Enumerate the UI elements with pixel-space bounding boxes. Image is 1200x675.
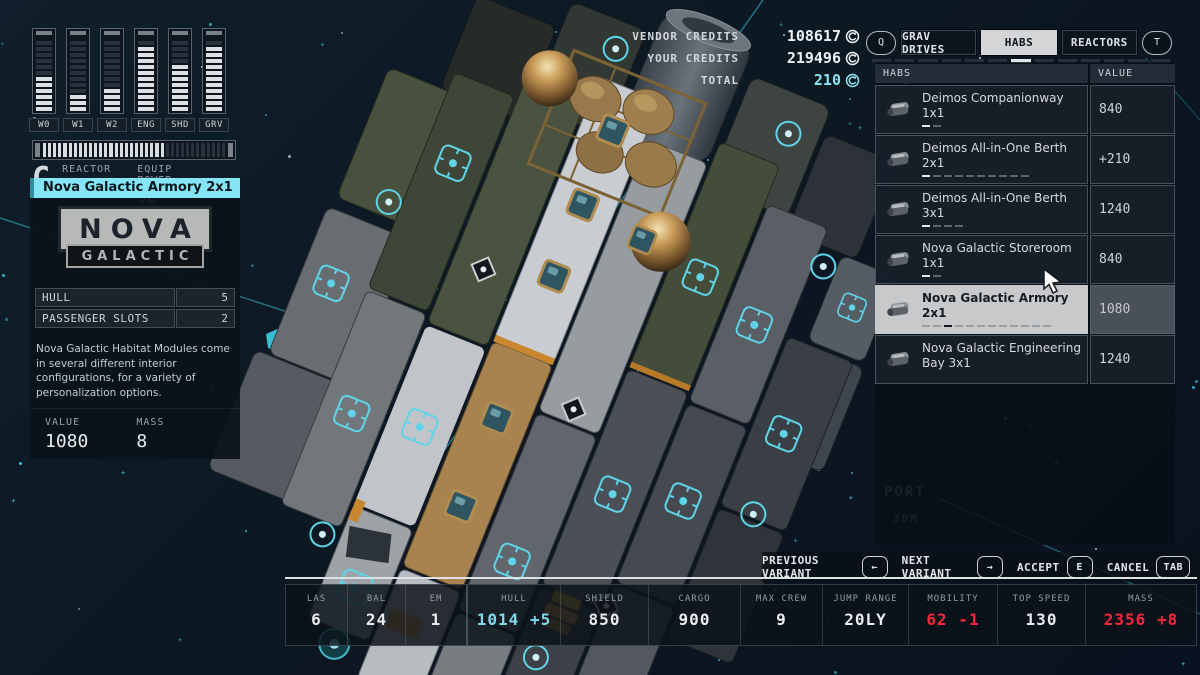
ship-stat-label: HULL bbox=[501, 594, 527, 604]
hab-module-icon bbox=[876, 251, 922, 268]
power-segment bbox=[104, 107, 120, 111]
power-segment bbox=[104, 41, 120, 45]
reactor-segment bbox=[150, 143, 153, 157]
ship-stat-value: 900 bbox=[679, 610, 711, 629]
credit-label: YOUR CREDITS bbox=[648, 52, 739, 65]
reactor-segment bbox=[99, 143, 102, 157]
ship-builder-screen: +++++++++++++++++++++++++++++++++ we bbox=[0, 0, 1200, 675]
variant-dash bbox=[955, 175, 963, 177]
credit-row: VENDOR CREDITS 108617 bbox=[598, 28, 860, 44]
ship-stat-cell: SHIELD 850 bbox=[561, 585, 649, 645]
variant-indicator bbox=[922, 225, 963, 227]
power-bar-label: W1 bbox=[63, 118, 93, 132]
power-bar-label: SHD bbox=[165, 118, 195, 132]
power-bar-cap bbox=[206, 31, 222, 35]
stat-value: 2 bbox=[176, 309, 235, 328]
ship-stat-cell: BAL 24 bbox=[348, 585, 406, 645]
reactor-segment bbox=[120, 143, 123, 157]
power-bar: W0 bbox=[32, 28, 56, 132]
power-segment bbox=[36, 59, 52, 63]
ship-stat-cell: EM 1 bbox=[406, 585, 468, 645]
power-segment bbox=[206, 71, 222, 75]
variant-indicator bbox=[922, 325, 1051, 327]
power-segment bbox=[206, 95, 222, 99]
reactor-capacity-bar bbox=[32, 140, 236, 160]
power-bar-segments bbox=[36, 37, 52, 111]
reactor-segment bbox=[74, 143, 77, 157]
hab-module-icon bbox=[876, 301, 922, 318]
power-segment bbox=[36, 65, 52, 69]
power-bar: SHD bbox=[168, 28, 192, 132]
stat-value: 5 bbox=[176, 288, 235, 307]
ship-stat-value: 6 bbox=[311, 610, 322, 629]
variant-dash bbox=[1010, 175, 1018, 177]
power-segment bbox=[138, 95, 154, 99]
power-bar-frame bbox=[134, 28, 158, 114]
power-segment bbox=[70, 95, 86, 99]
power-segment bbox=[138, 101, 154, 105]
reactor-segment bbox=[222, 143, 225, 157]
power-segment bbox=[172, 89, 188, 93]
ship-stat-label: EM bbox=[430, 594, 443, 604]
power-segment bbox=[104, 95, 120, 99]
module-value-mass: VALUE 1080 MASS 8 bbox=[30, 408, 240, 452]
power-segment bbox=[206, 53, 222, 57]
power-bar-label: GRV bbox=[199, 118, 229, 132]
reactor-segment bbox=[201, 143, 204, 157]
power-segment bbox=[172, 101, 188, 105]
hab-list-item[interactable]: Deimos All-in-One Berth 2x1 +210 bbox=[875, 135, 1175, 184]
reactor-segment bbox=[125, 143, 128, 157]
value-label: VALUE bbox=[45, 417, 88, 428]
variant-indicator bbox=[922, 125, 941, 127]
ship-stat-cell: HULL 1014 +5 bbox=[468, 585, 561, 645]
power-segment bbox=[172, 71, 188, 75]
reactor-segment bbox=[161, 143, 164, 157]
reactor-segment bbox=[166, 143, 169, 157]
power-bar-cap bbox=[70, 31, 86, 35]
power-segment bbox=[104, 101, 120, 105]
variant-dash bbox=[933, 275, 941, 277]
mass-label: MASS bbox=[136, 417, 164, 428]
reactor-segment bbox=[155, 143, 158, 157]
power-segment bbox=[206, 65, 222, 69]
variant-dash bbox=[944, 325, 952, 327]
power-segment bbox=[138, 89, 154, 93]
power-bar-label: W0 bbox=[29, 118, 59, 132]
tab-grav-drives[interactable]: GRAV DRIVES bbox=[901, 30, 976, 55]
reactor-segment bbox=[53, 143, 56, 157]
action-key[interactable]: E bbox=[1067, 556, 1093, 578]
hab-module-icon bbox=[876, 151, 922, 168]
power-segment bbox=[36, 53, 52, 57]
credit-amount: 219496 bbox=[753, 49, 841, 67]
reactor-segment bbox=[140, 143, 143, 157]
module-description: Nova Galactic Habitat Modules come in se… bbox=[36, 342, 234, 401]
ship-stat-cell: LAS 6 bbox=[286, 585, 348, 645]
variant-dash bbox=[933, 225, 941, 227]
power-segment bbox=[206, 83, 222, 87]
variant-dash bbox=[1032, 325, 1040, 327]
power-segment bbox=[104, 89, 120, 93]
variant-dash bbox=[1010, 325, 1018, 327]
power-bar-segments bbox=[70, 37, 86, 111]
power-segment bbox=[172, 95, 188, 99]
reactor-segment bbox=[79, 143, 82, 157]
reactor-segment bbox=[130, 143, 133, 157]
ship-stat-cell: JUMP RANGE 20LY bbox=[823, 585, 909, 645]
power-segment bbox=[172, 83, 188, 87]
ship-stat-value: 62 -1 bbox=[926, 610, 979, 629]
reactor-segment bbox=[115, 143, 118, 157]
power-segment bbox=[206, 77, 222, 81]
power-segment bbox=[36, 41, 52, 45]
ship-stat-cell: MAX CREW 9 bbox=[741, 585, 823, 645]
power-segment bbox=[206, 101, 222, 105]
variant-dash bbox=[1021, 175, 1029, 177]
power-segment bbox=[172, 77, 188, 81]
category-tabs: Q GRAV DRIVES HABS REACTORS T bbox=[866, 30, 1172, 55]
hab-value: 1240 bbox=[1090, 185, 1175, 234]
reactor-segment bbox=[48, 143, 51, 157]
reactor-segment bbox=[181, 143, 184, 157]
variant-dash bbox=[988, 175, 996, 177]
stat-label: PASSENGER SLOTS bbox=[35, 309, 175, 328]
variant-dash bbox=[922, 125, 930, 127]
power-segment bbox=[104, 59, 120, 63]
power-segment bbox=[172, 107, 188, 111]
action-button[interactable]: ACCEPT E bbox=[1017, 556, 1093, 578]
power-bar-segments bbox=[138, 37, 154, 111]
logo-text-nova: NOVA bbox=[70, 214, 200, 245]
power-segment bbox=[138, 53, 154, 57]
reactor-segment bbox=[171, 143, 174, 157]
power-segment bbox=[138, 41, 154, 45]
variant-dash bbox=[999, 325, 1007, 327]
variant-dash bbox=[1043, 325, 1051, 327]
ship-stats-bar: LAS 6 BAL 24 EM 1 HULL 1014 +5 SHIELD 85… bbox=[285, 584, 1197, 646]
ship-stat-value: 850 bbox=[589, 610, 621, 629]
credit-amount: 210 bbox=[753, 71, 841, 89]
power-segment bbox=[206, 47, 222, 51]
value-amount: 1080 bbox=[45, 431, 88, 452]
variant-dash bbox=[999, 175, 1007, 177]
power-bar-frame bbox=[66, 28, 90, 114]
ship-stat-label: TOP SPEED bbox=[1013, 594, 1071, 604]
hab-list-item[interactable]: Nova Galactic Engineering Bay 3x1 1240 bbox=[875, 335, 1175, 384]
power-bar-frame bbox=[32, 28, 56, 114]
power-bar-cap bbox=[172, 31, 188, 35]
hab-module-icon bbox=[876, 101, 922, 118]
variant-dash bbox=[944, 175, 952, 177]
ship-stat-value: 2356 +8 bbox=[1104, 610, 1178, 629]
credit-label: VENDOR CREDITS bbox=[632, 30, 739, 43]
variant-dash bbox=[966, 175, 974, 177]
power-segment bbox=[206, 41, 222, 45]
power-segment bbox=[206, 107, 222, 111]
stat-label: HULL bbox=[35, 288, 175, 307]
power-segment bbox=[70, 107, 86, 111]
header-habs: HABS bbox=[875, 64, 1088, 83]
power-bar-label: ENG bbox=[131, 118, 161, 132]
power-segment bbox=[104, 47, 120, 51]
ship-stat-cell: MASS 2356 +8 bbox=[1086, 585, 1196, 645]
power-segment bbox=[70, 101, 86, 105]
action-button[interactable]: CANCEL TAB bbox=[1107, 556, 1190, 578]
variant-indicator bbox=[922, 275, 941, 277]
selected-module-title: Nova Galactic Armory 2x1 bbox=[30, 178, 240, 198]
hab-list-item[interactable]: Nova Galactic Armory 2x1 1080 bbox=[875, 285, 1175, 334]
reactor-segment bbox=[43, 143, 46, 157]
power-segment bbox=[172, 47, 188, 51]
variant-dash bbox=[922, 325, 930, 327]
variant-dash bbox=[966, 325, 974, 327]
power-segment bbox=[172, 65, 188, 69]
power-segment bbox=[104, 71, 120, 75]
hab-list: Deimos Companionway 1x1 840 bbox=[875, 85, 1175, 385]
variant-dash bbox=[922, 275, 930, 277]
ship-stat-value: 20LY bbox=[844, 610, 887, 629]
power-segment bbox=[36, 107, 52, 111]
variant-dash bbox=[933, 125, 941, 127]
reactor-segment bbox=[109, 143, 112, 157]
ship-stat-label: MASS bbox=[1128, 594, 1154, 604]
action-label: CANCEL bbox=[1107, 561, 1150, 574]
ship-stat-label: MAX CREW bbox=[756, 594, 807, 604]
module-stat-passenger-slots: PASSENGER SLOTS 2 bbox=[35, 309, 235, 328]
power-segment bbox=[70, 89, 86, 93]
tab-reactors[interactable]: REACTORS bbox=[1062, 30, 1137, 55]
ship-stat-label: CARGO bbox=[678, 594, 710, 604]
power-bar-label: W2 bbox=[97, 118, 127, 132]
power-segment bbox=[104, 77, 120, 81]
hab-value: 840 bbox=[1090, 85, 1175, 134]
ship-stat-value: 9 bbox=[776, 610, 787, 629]
hab-value: 840 bbox=[1090, 235, 1175, 284]
variant-dash bbox=[922, 225, 930, 227]
power-segment bbox=[70, 47, 86, 51]
tab-cycle-right-key[interactable]: T bbox=[1142, 31, 1172, 55]
reactor-segment bbox=[186, 143, 189, 157]
hab-value: 1080 bbox=[1090, 285, 1175, 334]
power-segment bbox=[104, 83, 120, 87]
action-key[interactable]: ← bbox=[862, 556, 888, 578]
ship-stat-label: SHIELD bbox=[585, 594, 624, 604]
variant-dash bbox=[977, 175, 985, 177]
power-segment bbox=[172, 41, 188, 45]
mass-amount: 8 bbox=[136, 431, 164, 452]
power-segment bbox=[206, 59, 222, 63]
power-bar: W2 bbox=[100, 28, 124, 132]
hab-value: +210 bbox=[1090, 135, 1175, 184]
power-segment bbox=[206, 89, 222, 93]
power-segment bbox=[70, 77, 86, 81]
power-segment bbox=[138, 77, 154, 81]
power-segment bbox=[70, 83, 86, 87]
variant-dash bbox=[1021, 325, 1029, 327]
power-segment bbox=[36, 77, 52, 81]
hab-name: Deimos Companionway 1x1 bbox=[922, 86, 1087, 133]
ship-stat-value: 24 bbox=[366, 610, 387, 629]
power-segment bbox=[70, 59, 86, 63]
logo-text-galactic: GALACTIC bbox=[77, 249, 194, 264]
hab-value: 1240 bbox=[1090, 335, 1175, 384]
power-bar-segments bbox=[104, 37, 120, 111]
ghost-scale-label: 30M bbox=[893, 512, 919, 525]
power-segment bbox=[36, 101, 52, 105]
variant-dash bbox=[977, 325, 985, 327]
power-bar: ENG bbox=[134, 28, 158, 132]
reactor-segment bbox=[58, 143, 61, 157]
variant-dash bbox=[944, 225, 952, 227]
ship-stat-cell: CARGO 900 bbox=[649, 585, 741, 645]
action-key[interactable]: → bbox=[977, 556, 1003, 578]
ship-stat-cell: TOP SPEED 130 bbox=[998, 585, 1086, 645]
power-bar-cap bbox=[36, 31, 52, 35]
power-segment bbox=[36, 95, 52, 99]
hab-module-icon bbox=[876, 201, 922, 218]
power-segment bbox=[36, 83, 52, 87]
ship-stat-cell: MOBILITY 62 -1 bbox=[909, 585, 998, 645]
power-segment bbox=[70, 53, 86, 57]
credit-amount: 108617 bbox=[753, 27, 841, 45]
power-bar: GRV bbox=[202, 28, 226, 132]
hab-list-item[interactable]: Deimos Companionway 1x1 840 bbox=[875, 85, 1175, 134]
header-value: VALUE bbox=[1090, 64, 1175, 83]
mouse-cursor bbox=[1042, 268, 1066, 294]
reactor-segment bbox=[145, 143, 148, 157]
hab-name-cell[interactable]: Deimos All-in-One Berth 2x1 bbox=[875, 135, 1088, 184]
power-segment bbox=[138, 65, 154, 69]
reactor-segment bbox=[63, 143, 66, 157]
reactor-segment bbox=[135, 143, 138, 157]
power-segment bbox=[104, 65, 120, 69]
variant-dash bbox=[988, 325, 996, 327]
power-bar-frame bbox=[100, 28, 124, 114]
reactor-segment bbox=[69, 143, 72, 157]
ship-stat-label: JUMP RANGE bbox=[833, 594, 897, 604]
power-segment bbox=[138, 47, 154, 51]
hab-name-cell[interactable]: Deimos All-in-One Berth 3x1 bbox=[875, 185, 1088, 234]
bar-cap-right bbox=[228, 143, 233, 157]
credit-label: TOTAL bbox=[701, 74, 739, 87]
credits-icon bbox=[845, 29, 860, 44]
tab-habs[interactable]: HABS bbox=[981, 30, 1056, 55]
ship-stat-label: LAS bbox=[307, 594, 326, 604]
power-segment bbox=[138, 71, 154, 75]
power-bar-cap bbox=[104, 31, 120, 35]
power-bar-segments bbox=[172, 37, 188, 111]
reactor-segment bbox=[212, 143, 215, 157]
power-segment bbox=[138, 83, 154, 87]
power-segment bbox=[172, 59, 188, 63]
variant-dash bbox=[922, 175, 930, 177]
ship-stat-value: 1 bbox=[431, 610, 442, 629]
power-segment bbox=[70, 71, 86, 75]
power-segment bbox=[70, 41, 86, 45]
tab-cycle-left-key[interactable]: Q bbox=[866, 31, 896, 55]
reactor-segment bbox=[217, 143, 220, 157]
power-bar-frame bbox=[202, 28, 226, 114]
hab-module-icon bbox=[876, 351, 922, 368]
hab-name-cell[interactable]: Deimos Companionway 1x1 bbox=[875, 85, 1088, 134]
power-segment bbox=[36, 89, 52, 93]
reactor-segment bbox=[104, 143, 107, 157]
reactor-segment bbox=[196, 143, 199, 157]
variant-dash bbox=[955, 225, 963, 227]
power-segment bbox=[138, 59, 154, 63]
credit-row: TOTAL 210 bbox=[598, 72, 860, 88]
reactor-label: REACTOR bbox=[62, 164, 111, 175]
ship-stat-value: 130 bbox=[1026, 610, 1058, 629]
reactor-segment bbox=[84, 143, 87, 157]
reactor-segment bbox=[176, 143, 179, 157]
power-bar: W1 bbox=[66, 28, 90, 132]
reactor-segment bbox=[207, 143, 210, 157]
hab-list-header: HABS VALUE bbox=[875, 64, 1175, 83]
reactor-segment bbox=[89, 143, 92, 157]
credits-icon bbox=[845, 73, 860, 88]
hab-name: Nova Galactic Engineering Bay 3x1 bbox=[922, 336, 1087, 383]
hab-name-cell[interactable]: Nova Galactic Engineering Bay 3x1 bbox=[875, 335, 1088, 384]
power-segment bbox=[36, 47, 52, 51]
module-info-panel: NOVA GALACTIC HULL 5 PASSENGER SLOTS 2 N… bbox=[30, 198, 240, 459]
power-bar-cap bbox=[138, 31, 154, 35]
power-segment bbox=[138, 107, 154, 111]
module-stat-hull: HULL 5 bbox=[35, 288, 235, 307]
stats-divider-line bbox=[285, 577, 1197, 579]
power-segment bbox=[172, 53, 188, 57]
power-segment bbox=[104, 53, 120, 57]
ghost-port-label: PORT bbox=[884, 484, 926, 500]
hab-list-item[interactable]: Nova Galactic Storeroom 1x1 840 bbox=[875, 235, 1175, 284]
ship-stat-label: BAL bbox=[367, 594, 386, 604]
reactor-segment bbox=[94, 143, 97, 157]
ship-stat-label: MOBILITY bbox=[927, 594, 978, 604]
action-label: ACCEPT bbox=[1017, 561, 1060, 574]
ship-stat-value: 1014 +5 bbox=[477, 610, 551, 629]
hab-list-item[interactable]: Deimos All-in-One Berth 3x1 1240 bbox=[875, 185, 1175, 234]
variant-dash bbox=[933, 175, 941, 177]
credits-summary: VENDOR CREDITS 108617 YOUR CREDITS 21949… bbox=[598, 28, 860, 94]
power-segment bbox=[36, 71, 52, 75]
credit-row: YOUR CREDITS 219496 bbox=[598, 50, 860, 66]
variant-dash bbox=[955, 325, 963, 327]
action-key[interactable]: TAB bbox=[1156, 556, 1190, 578]
power-segment bbox=[70, 65, 86, 69]
variant-dash bbox=[933, 325, 941, 327]
power-bar-frame bbox=[168, 28, 192, 114]
manufacturer-logo-sub: GALACTIC bbox=[66, 244, 204, 268]
variant-indicator bbox=[922, 175, 1029, 177]
reactor-segment bbox=[191, 143, 194, 157]
credits-icon bbox=[845, 51, 860, 66]
power-bar-segments bbox=[206, 37, 222, 111]
